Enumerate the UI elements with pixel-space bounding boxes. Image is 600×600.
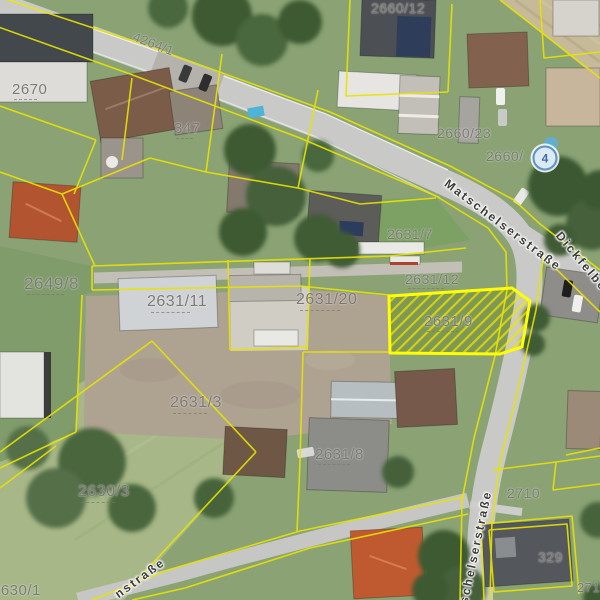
poi-marker-label: 4 (542, 151, 549, 165)
poi-marker[interactable]: 4 (533, 146, 558, 171)
highlighted-parcel[interactable] (389, 288, 530, 354)
map-viewport[interactable]: 26704264/13472660/122660/232660/2631/726… (0, 0, 600, 600)
aerial-canvas (0, 0, 600, 600)
